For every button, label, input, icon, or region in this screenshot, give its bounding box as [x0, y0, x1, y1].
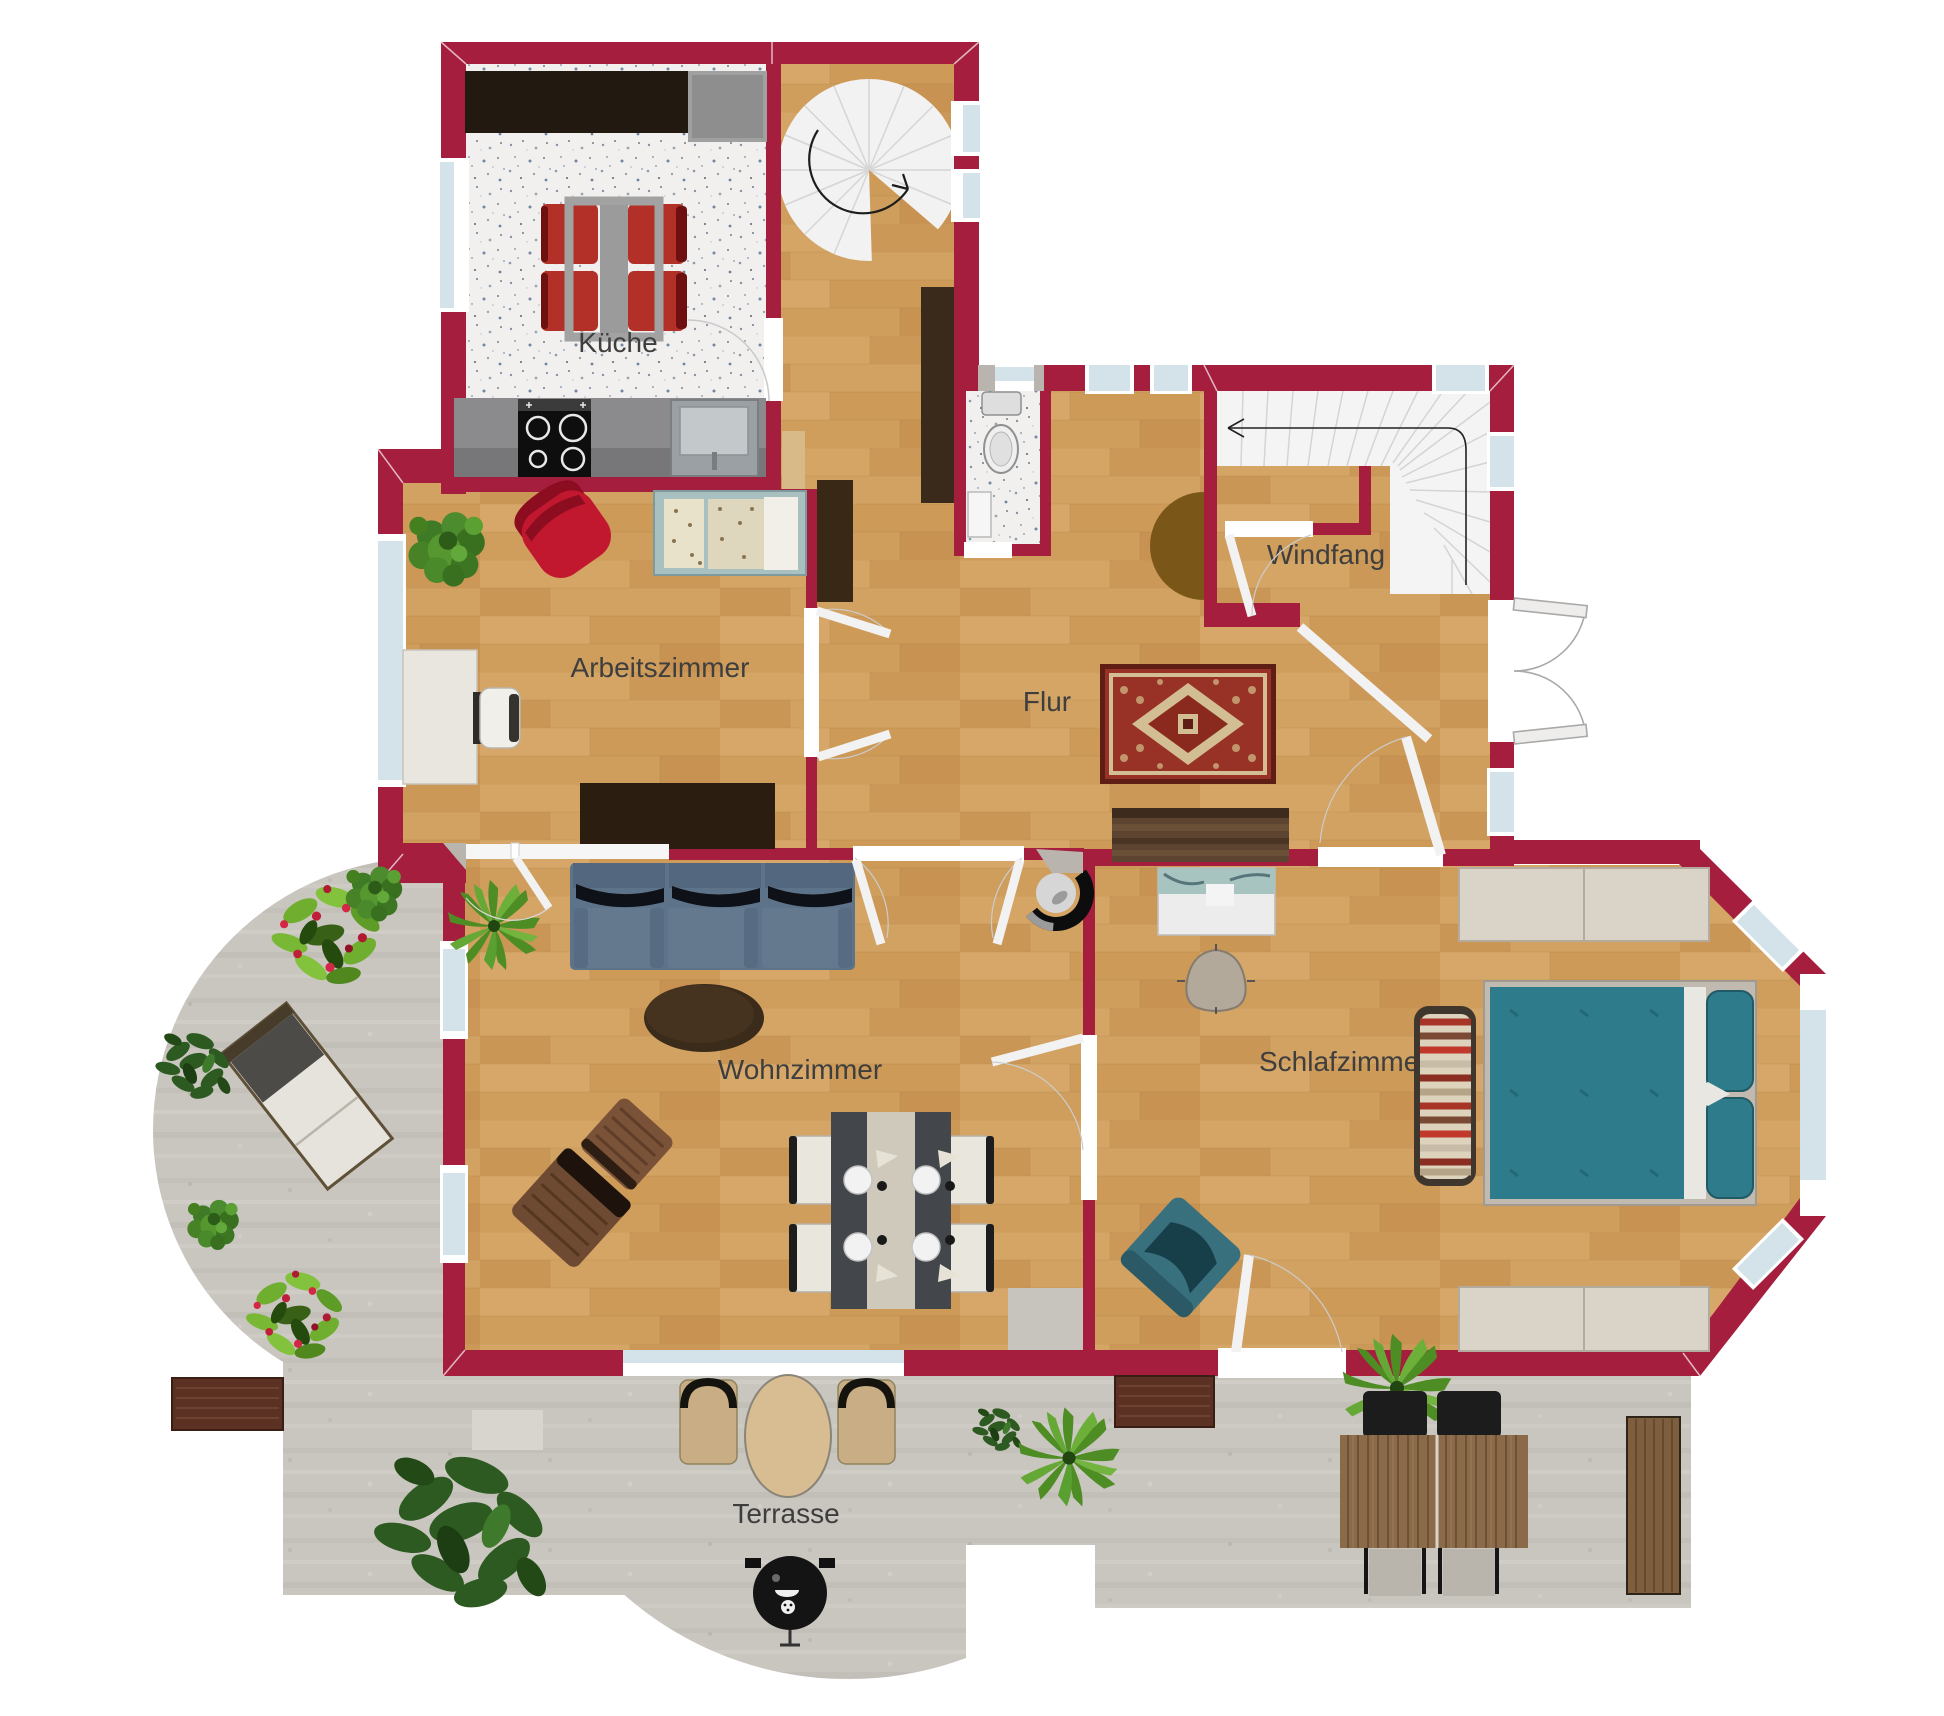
svg-text:Wohnzimmer: Wohnzimmer	[718, 1054, 882, 1085]
svg-text:Küche: Küche	[578, 327, 657, 358]
svg-text:Schlafzimmer: Schlafzimmer	[1259, 1046, 1429, 1077]
svg-text:Windfang: Windfang	[1267, 539, 1385, 570]
svg-text:Flur: Flur	[1023, 686, 1071, 717]
svg-text:Terrasse: Terrasse	[732, 1498, 839, 1529]
svg-text:Arbeitszimmer: Arbeitszimmer	[571, 652, 750, 683]
